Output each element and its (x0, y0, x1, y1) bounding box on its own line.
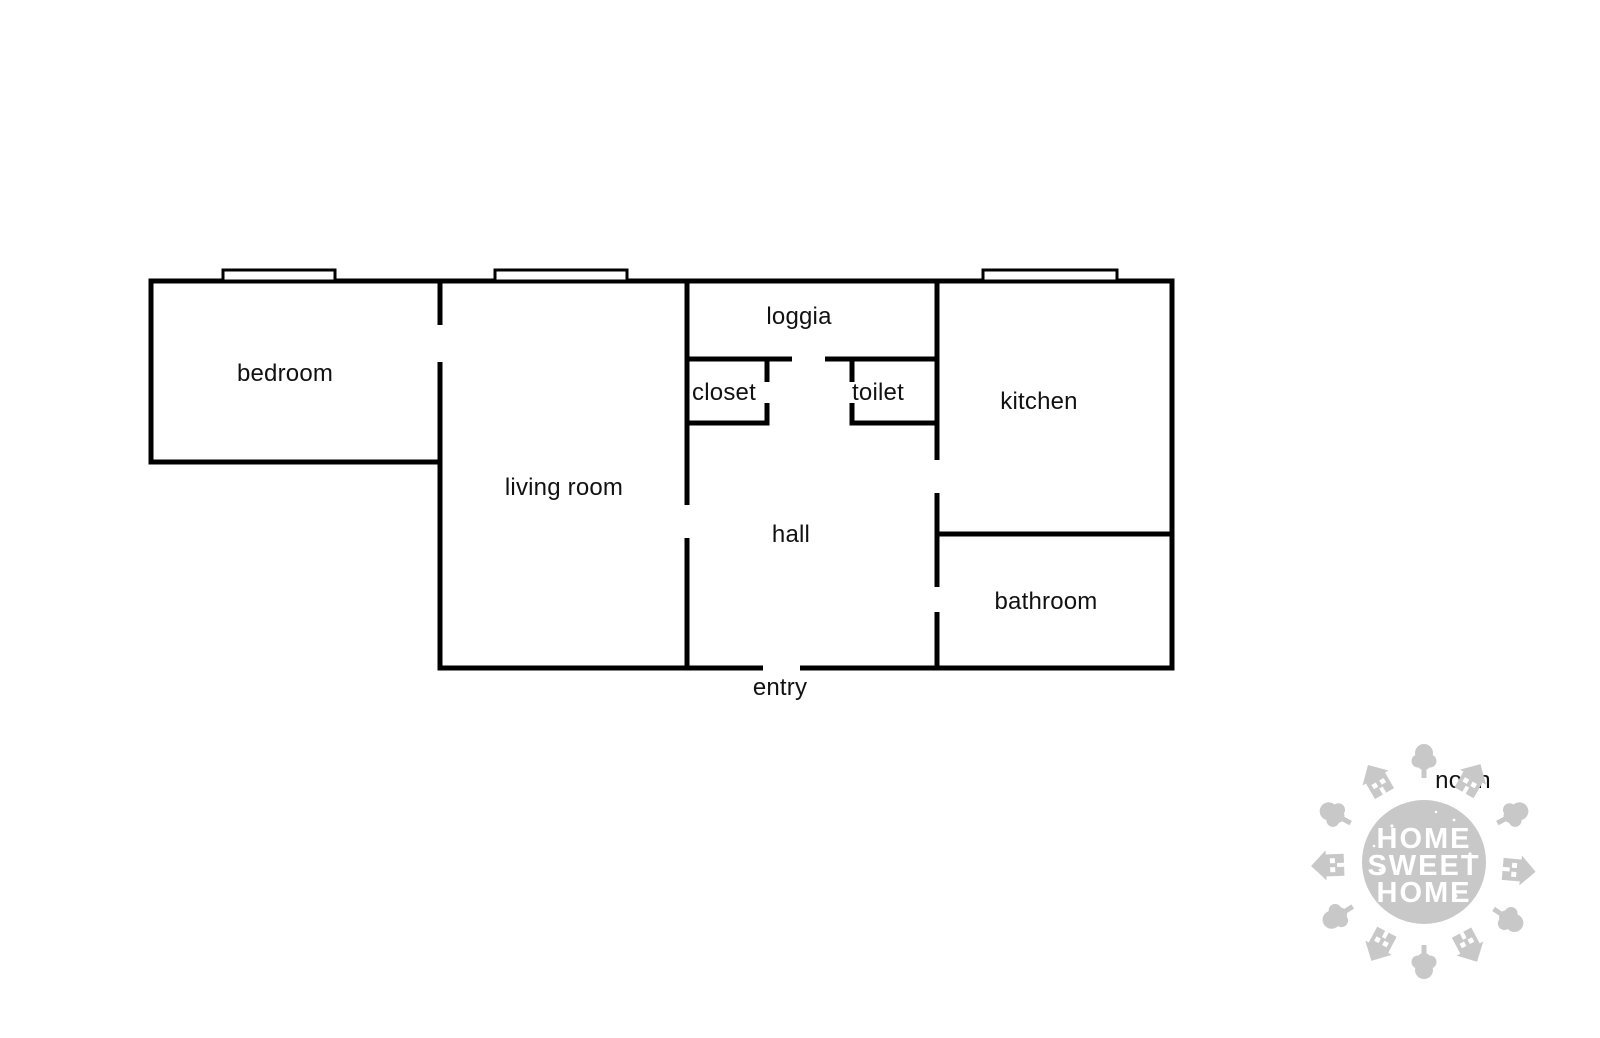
kitchen-window-marker (983, 270, 1117, 281)
room-label-living-room: living room (505, 474, 623, 502)
house-doodle-icon (1501, 854, 1536, 887)
stamp-text: HOME SWEET HOME (1367, 823, 1480, 909)
room-label-closet: closet (692, 379, 756, 407)
room-label-bedroom: bedroom (237, 360, 333, 388)
house-doodle-icon (1355, 758, 1397, 802)
house-doodle-icon (1448, 926, 1490, 969)
room-label-hall: hall (772, 521, 810, 549)
house-doodle-icon (1311, 850, 1345, 881)
room-label-loggia: loggia (766, 303, 831, 331)
room-label-entry: entry (753, 674, 807, 702)
tree-doodle-icon (1315, 796, 1357, 834)
room-label-toilet: toilet (852, 379, 904, 407)
house-doodle-icon (1358, 925, 1400, 968)
house-doodle-icon (1451, 757, 1493, 801)
room-label-kitchen: kitchen (1000, 388, 1077, 416)
home-sweet-home-stamp: HOME SWEET HOME (1304, 742, 1544, 982)
bedroom-window-marker (223, 270, 335, 281)
room-label-bathroom: bathroom (995, 588, 1098, 616)
tree-doodle-icon (1412, 945, 1437, 979)
tree-doodle-icon (1491, 796, 1533, 834)
tree-doodle-icon (1317, 896, 1359, 935)
stamp-line-3: HOME (1377, 877, 1472, 909)
tree-doodle-icon (1412, 744, 1437, 778)
floor-plan-page: bedroom living room loggia closet toilet… (0, 0, 1600, 1038)
living-room-window-marker (495, 270, 627, 281)
tree-doodle-icon (1487, 899, 1529, 939)
